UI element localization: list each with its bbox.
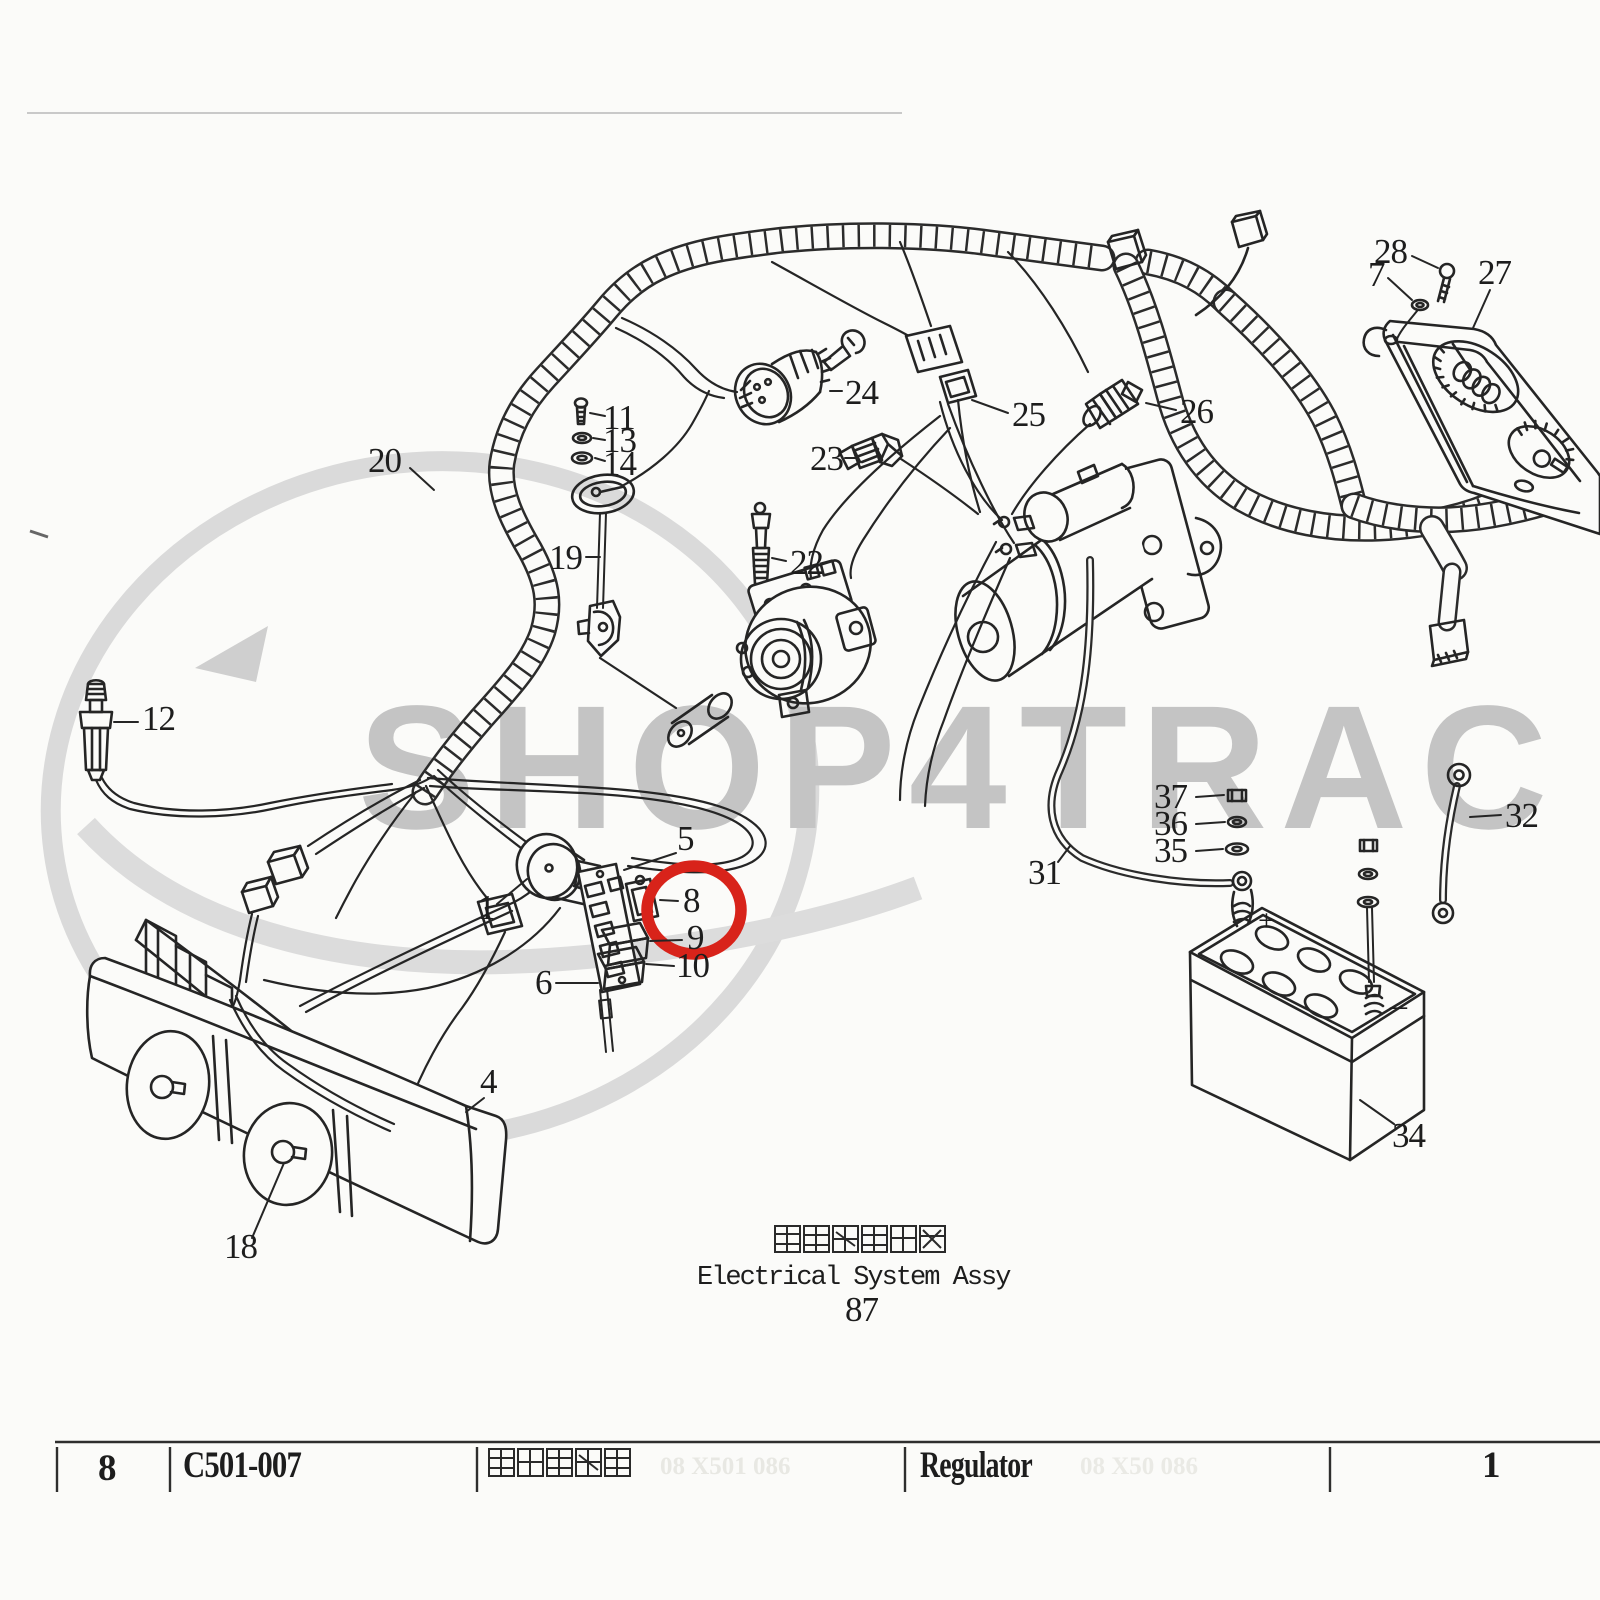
svg-text:18: 18 xyxy=(224,1227,258,1266)
svg-text:32: 32 xyxy=(1505,796,1538,835)
svg-text:C501-007: C501-007 xyxy=(183,1445,301,1486)
svg-text:35: 35 xyxy=(1154,831,1188,870)
svg-text:12: 12 xyxy=(142,699,175,738)
svg-text:Regulator: Regulator xyxy=(920,1445,1032,1486)
svg-text:27: 27 xyxy=(1478,253,1512,292)
svg-text:6: 6 xyxy=(535,963,552,1002)
svg-text:10: 10 xyxy=(676,946,710,985)
svg-text:8: 8 xyxy=(98,1448,116,1489)
svg-text:Electrical System Assy: Electrical System Assy xyxy=(697,1263,1011,1293)
svg-text:–: – xyxy=(1389,987,1408,1024)
svg-text:8: 8 xyxy=(683,881,700,920)
svg-text:1: 1 xyxy=(1482,1445,1500,1486)
svg-text:20: 20 xyxy=(368,441,402,480)
svg-text:19: 19 xyxy=(549,538,583,577)
svg-text:08 X501 086: 08 X501 086 xyxy=(660,1453,791,1480)
svg-text:24: 24 xyxy=(845,373,879,412)
svg-text:22: 22 xyxy=(790,543,823,582)
svg-text:1: 1 xyxy=(478,888,495,927)
svg-text:87: 87 xyxy=(845,1290,879,1329)
svg-text:23: 23 xyxy=(810,439,844,478)
svg-text:7: 7 xyxy=(1368,255,1385,294)
svg-text:26: 26 xyxy=(1180,392,1214,431)
svg-text:4: 4 xyxy=(480,1062,497,1101)
svg-text:08 X50 086: 08 X50 086 xyxy=(1080,1453,1198,1480)
svg-text:5: 5 xyxy=(677,819,694,858)
svg-text:31: 31 xyxy=(1028,853,1061,892)
svg-text:14: 14 xyxy=(603,444,637,483)
svg-text:+: + xyxy=(1258,904,1275,937)
svg-text:25: 25 xyxy=(1012,395,1046,434)
svg-text:34: 34 xyxy=(1392,1116,1426,1155)
